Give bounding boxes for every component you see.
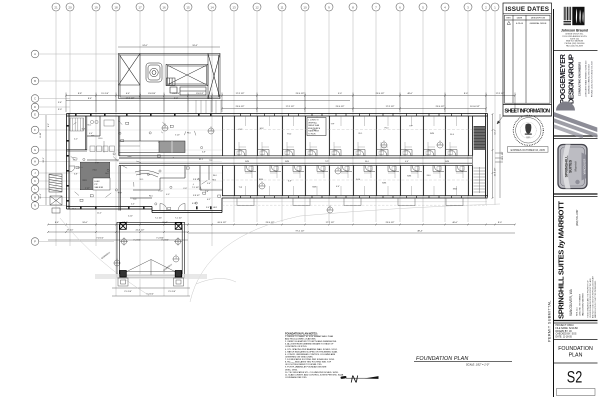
svg-text:A: A xyxy=(34,52,36,56)
svg-text:B: B xyxy=(34,79,36,83)
svg-text:15: 15 xyxy=(186,5,190,9)
svg-text:PHONE: (419) 352-7537 (800) 5: PHONE: (419) 352-7537 (800) 555-3057 xyxy=(592,60,594,97)
svg-text:ELEV: ELEV xyxy=(95,181,101,183)
svg-text:3 1/2": 3 1/2" xyxy=(175,135,180,137)
svg-text:1889: 1889 xyxy=(526,137,530,139)
svg-text:VANCOUVER: VANCOUVER xyxy=(584,158,587,174)
svg-text:SCALE: 1/32" = 1'-0": SCALE: 1/32" = 1'-0" xyxy=(466,363,489,366)
svg-text:HD2: HD2 xyxy=(313,130,317,132)
svg-text:C: C xyxy=(34,97,36,101)
svg-text:SW4: SW4 xyxy=(453,189,457,191)
svg-text:J: J xyxy=(34,171,36,175)
svg-text:11. SLAB CONSTR. AND CONTROL J: 11. SLAB CONSTR. AND CONTROL JOINTS PER … xyxy=(285,373,344,376)
svg-text:6: 6 xyxy=(399,5,401,9)
svg-text:TYP: TYP xyxy=(133,199,137,201)
svg-text:SEE 8/S5: SEE 8/S5 xyxy=(95,187,105,189)
svg-text:16: 16 xyxy=(162,5,166,9)
svg-text:DESCRIPTION: DESCRIPTION xyxy=(531,17,546,19)
svg-text:6'-8": 6'-8" xyxy=(288,181,292,183)
svg-text:10. TSC INDICATES STL. COLUMN: 10. TSC INDICATES STL. COLUMN PER SCHED.… xyxy=(285,371,339,374)
svg-text:PLAN: PLAN xyxy=(569,353,583,359)
svg-text:5'-0": 5'-0" xyxy=(207,183,211,185)
svg-text:SW4: SW4 xyxy=(430,133,434,135)
svg-text:3 1/2": 3 1/2" xyxy=(73,160,78,162)
svg-text:11: 11 xyxy=(280,5,283,9)
svg-text:6'-8": 6'-8" xyxy=(202,152,206,154)
svg-text:8'-4": 8'-4" xyxy=(88,98,92,100)
svg-text:8: 8 xyxy=(352,5,354,9)
svg-text:13: 13 xyxy=(232,5,236,9)
svg-text:5'-10": 5'-10" xyxy=(128,216,133,218)
svg-text:F8.0: F8.0 xyxy=(99,138,103,140)
svg-text:8. HD------ INDICATES TIED FO: 8. HD------ INDICATES TIED FOOTING W/B. … xyxy=(285,361,332,364)
svg-text:6'-2": 6'-2" xyxy=(48,123,50,127)
svg-text:COVERAGE REF 2/S5.: COVERAGE REF 2/S5. xyxy=(285,376,307,379)
svg-text:7'-4 3/4": 7'-4 3/4" xyxy=(133,239,141,241)
svg-text:MANNER WITHOUT WRITTEN PERMISS: MANNER WITHOUT WRITTEN PERMISSION. xyxy=(594,280,597,318)
svg-text:21: 21 xyxy=(54,5,58,9)
svg-text:31'-2": 31'-2" xyxy=(43,157,45,163)
svg-text:6'-4": 6'-4" xyxy=(126,93,130,95)
svg-text:FILE NAME: S210-B2: FILE NAME: S210-B2 xyxy=(556,327,579,330)
svg-text:3'-0": 3'-0" xyxy=(58,109,62,111)
svg-text:VANCOUVER, WA: VANCOUVER, WA xyxy=(569,288,573,316)
svg-text:18: 18 xyxy=(114,5,118,9)
svg-text:4'-0": 4'-0" xyxy=(405,161,409,163)
svg-text:10: 10 xyxy=(303,5,307,9)
svg-text:TYP: TYP xyxy=(239,187,243,189)
svg-text:FOUNDATION PLAN: FOUNDATION PLAN xyxy=(416,356,468,362)
svg-text:23'-0 1/2": 23'-0 1/2" xyxy=(436,106,445,108)
svg-text:TYP: TYP xyxy=(331,124,335,126)
svg-text:CHECKED BY: SGS: CHECKED BY: SGS xyxy=(556,334,577,336)
svg-text:7'-1 1/2": 7'-1 1/2" xyxy=(175,218,182,220)
svg-text:DATE: DATE xyxy=(517,16,523,19)
svg-text:TYP.: TYP. xyxy=(209,160,213,162)
svg-text:6. CONCR. UNFINISHED CONTROL: 6. CONCR. UNFINISHED CONTROL COLUMNS ARE xyxy=(285,353,336,356)
svg-text:12810 SE. 7TH STREET: 12810 SE. 7TH STREET xyxy=(580,293,582,316)
svg-text:SW6: SW6 xyxy=(285,161,289,163)
svg-text:4'-2": 4'-2" xyxy=(207,199,211,201)
svg-text:7'-4 1/2": 7'-4 1/2" xyxy=(146,294,154,296)
svg-text:7'-4 3/4": 7'-4 3/4" xyxy=(161,239,169,241)
svg-text:M: M xyxy=(34,196,37,200)
svg-text:S5.1: S5.1 xyxy=(140,179,144,181)
svg-text:14: 14 xyxy=(210,5,214,9)
svg-text:22'-6 1/2": 22'-6 1/2" xyxy=(136,230,145,232)
svg-text:4: 4 xyxy=(444,5,446,9)
svg-text:SW6: SW6 xyxy=(445,161,449,163)
svg-text:K: K xyxy=(34,179,36,183)
svg-text:SPRINGHILL SUITES by MARRIOTT: SPRINGHILL SUITES by MARRIOTT xyxy=(557,201,566,319)
svg-text:9'-1 1/4": 9'-1 1/4" xyxy=(101,93,109,95)
svg-text:REV: REV xyxy=(507,17,512,19)
svg-text:8'-8 3/4": 8'-8 3/4" xyxy=(148,93,156,95)
svg-text:E: E xyxy=(34,113,36,117)
svg-text:7: 7 xyxy=(375,5,377,9)
svg-text:DESIGN GROUP: DESIGN GROUP xyxy=(567,54,576,104)
svg-text:13'-8 1/2": 13'-8 1/2" xyxy=(494,167,496,176)
svg-text:5. HATCH INDICATES SLOPED OR: 5. HATCH INDICATES SLOPED OR THICKENED S… xyxy=(285,350,338,353)
svg-text:(360) 571-1997: (360) 571-1997 xyxy=(576,209,579,226)
svg-text:SHEET INFORMATION: SHEET INFORMATION xyxy=(505,109,551,115)
svg-text:23'-0 1/2": 23'-0 1/2" xyxy=(296,93,305,95)
svg-text:6'-8": 6'-8" xyxy=(239,129,243,131)
svg-text:23'-0 1/2": 23'-0 1/2" xyxy=(386,222,395,224)
svg-text:4. STL. SPACING PER BEARING W: 4. STL. SPACING PER BEARING WALL SCHED. … xyxy=(285,348,338,351)
svg-text:PERMIT SUBMITTAL: PERMIT SUBMITTAL xyxy=(547,300,551,342)
svg-text:18'-0": 18'-0" xyxy=(82,222,88,224)
svg-text:4'-0": 4'-0" xyxy=(131,203,135,205)
svg-text:7'-1 1/4": 7'-1 1/4" xyxy=(155,218,162,220)
svg-text:D: D xyxy=(34,105,36,109)
svg-text:F4.0: F4.0 xyxy=(356,179,360,181)
svg-text:F4.0: F4.0 xyxy=(93,169,97,171)
svg-text:TYP.: TYP. xyxy=(95,163,99,165)
svg-text:S5.1: S5.1 xyxy=(72,208,76,210)
svg-text:46'-0": 46'-0" xyxy=(452,222,458,224)
svg-text:3. ALL EXTERIOR DIMENSIONS AR: 3. ALL EXTERIOR DIMENSIONS ARE TO FACE O… xyxy=(285,343,334,346)
svg-text:SW6: SW6 xyxy=(127,156,131,158)
svg-text:10'-10 1/2": 10'-10 1/2" xyxy=(470,106,480,108)
svg-text:48'-4": 48'-4" xyxy=(417,231,423,233)
svg-text:TYP: TYP xyxy=(325,161,329,163)
svg-text:1. CONTR. TO: 1. CONTR. TO xyxy=(308,120,319,122)
svg-text:F: F xyxy=(34,128,36,132)
svg-text:1: 1 xyxy=(494,5,496,9)
svg-text:8'-10": 8'-10" xyxy=(40,132,42,138)
svg-text:TO POUR: TO POUR xyxy=(308,134,316,136)
svg-text:F8.0: F8.0 xyxy=(187,132,191,134)
svg-text:3 1/2": 3 1/2" xyxy=(85,188,90,190)
svg-text:8'-8": 8'-8" xyxy=(78,93,82,95)
svg-text:4'-0": 4'-0" xyxy=(166,194,170,196)
svg-text:F4.0: F4.0 xyxy=(149,196,153,198)
svg-text:SHS, LLC: SHS, LLC xyxy=(577,307,579,316)
svg-text:BOWLING GREEN, OHIO 43402: BOWLING GREEN, OHIO 43402 xyxy=(589,63,591,93)
svg-text:G: G xyxy=(34,148,36,152)
svg-text:5'-4": 5'-4" xyxy=(58,102,62,104)
svg-text:19: 19 xyxy=(94,5,98,9)
svg-text:12: 12 xyxy=(255,5,259,9)
svg-text:PROJECT: #3010: PROJECT: #3010 xyxy=(556,325,575,327)
svg-text:6'-10": 6'-10" xyxy=(192,203,197,205)
svg-text:5: 5 xyxy=(422,5,424,9)
svg-text:14'-2": 14'-2" xyxy=(494,129,496,135)
svg-text:2'-1 1/4": 2'-1 1/4" xyxy=(124,291,132,293)
svg-text:9'-8 1/2": 9'-8 1/2" xyxy=(193,195,200,197)
svg-text:3'-4": 3'-4" xyxy=(206,207,210,209)
svg-text:11'-2": 11'-2" xyxy=(97,213,102,215)
svg-text:17'-2 1/2": 17'-2 1/2" xyxy=(326,222,335,224)
svg-text:AND HOLD-DOWN LOCATIONS.: AND HOLD-DOWN LOCATIONS. xyxy=(285,338,316,341)
svg-text:FAX: (206) 766-8399: FAX: (206) 766-8399 xyxy=(566,44,583,47)
svg-text:17'-2 1/2": 17'-2 1/2" xyxy=(236,93,245,95)
svg-text:SW6: SW6 xyxy=(382,183,386,185)
svg-text:23'-0 1/2": 23'-0 1/2" xyxy=(336,106,345,108)
svg-text:OF FOOTING REFER TO DETAIL 7/S: OF FOOTING REFER TO DETAIL 7/S5. xyxy=(285,363,322,366)
svg-text:F4.0: F4.0 xyxy=(450,134,454,136)
svg-text:DRAWN BY: JD: DRAWN BY: JD xyxy=(556,330,573,333)
svg-text:N: N xyxy=(351,374,359,386)
svg-text:17'-2 1/2": 17'-2 1/2" xyxy=(386,106,395,108)
svg-text:F6.0: F6.0 xyxy=(385,127,389,129)
svg-text:GENERAL ISSUE: GENERAL ISSUE xyxy=(530,22,547,25)
svg-text:7. F4 INDICATES FOOTING PER S: 7. F4 INDICATES FOOTING PER SCHEDULE 15/… xyxy=(285,358,335,361)
svg-text:1. REFER TO SHEET S1 FOR SHEA: 1. REFER TO SHEET S1 FOR SHEAR WALL PLAN xyxy=(285,335,334,338)
svg-text:F6.0: F6.0 xyxy=(105,173,109,175)
svg-text:F4.0: F4.0 xyxy=(213,175,217,177)
svg-text:60'-4 1/2": 60'-4 1/2" xyxy=(218,222,227,224)
svg-text:48'-0": 48'-0" xyxy=(407,93,413,95)
svg-text:SUITES: SUITES xyxy=(569,159,573,173)
svg-text:CONSULTING ENGINEERS: CONSULTING ENGINEERS xyxy=(578,62,582,96)
svg-text:23'-0 1/2": 23'-0 1/2" xyxy=(376,93,385,95)
svg-text:Johnson Braund: Johnson Braund xyxy=(561,29,588,33)
svg-text:2'-1 1/4": 2'-1 1/4" xyxy=(168,291,176,293)
svg-text:4'-0": 4'-0" xyxy=(74,139,78,141)
svg-text:SW4: SW4 xyxy=(245,161,249,163)
svg-text:97'-1 1/2": 97'-1 1/2" xyxy=(296,231,305,233)
svg-text:29'-5 1/2": 29'-5 1/2" xyxy=(502,151,504,160)
svg-text:6'-8": 6'-8" xyxy=(82,128,86,130)
svg-text:EXPIRES OCTOBER 16, 2005: EXPIRES OCTOBER 16, 2005 xyxy=(511,149,546,152)
svg-text:12'-4": 12'-4" xyxy=(40,193,42,199)
svg-text:18'-6": 18'-6" xyxy=(192,45,198,47)
svg-text:2: 2 xyxy=(485,5,487,9)
svg-text:S5.1: S5.1 xyxy=(199,159,203,161)
svg-text:7'-1 1/4": 7'-1 1/4" xyxy=(192,187,199,189)
svg-text:3: 3 xyxy=(467,5,469,9)
svg-text:TYP: TYP xyxy=(409,125,413,127)
svg-text:9'-0": 9'-0" xyxy=(338,93,342,95)
svg-text:SW4: SW4 xyxy=(82,180,86,182)
svg-text:N: N xyxy=(34,204,36,208)
svg-text:FOUNDATION: FOUNDATION xyxy=(558,346,593,352)
svg-text:HD2: HD2 xyxy=(213,207,217,209)
svg-text:F4.0: F4.0 xyxy=(427,175,431,177)
svg-text:20: 20 xyxy=(68,5,72,9)
svg-text:F4.0: F4.0 xyxy=(287,134,291,136)
svg-text:TYP.: TYP. xyxy=(118,193,122,195)
svg-text:17'-2 1/2": 17'-2 1/2" xyxy=(286,106,295,108)
svg-text:VANCOUVER, WA 98683: VANCOUVER, WA 98683 xyxy=(582,292,585,316)
svg-text:17: 17 xyxy=(138,5,142,9)
svg-text:S2: S2 xyxy=(567,369,583,387)
svg-text:8'-0": 8'-0" xyxy=(464,93,468,95)
svg-text:4'-0": 4'-0" xyxy=(89,133,93,135)
svg-text:SW6: SW6 xyxy=(312,187,316,189)
svg-text:9: 9 xyxy=(328,5,330,9)
svg-text:S5.1: S5.1 xyxy=(358,133,362,135)
svg-text:ISSUE DATES: ISSUE DATES xyxy=(505,6,549,13)
svg-text:3 1/2": 3 1/2" xyxy=(158,190,163,192)
svg-text:F6.0: F6.0 xyxy=(365,161,369,163)
svg-text:L: L xyxy=(34,187,36,191)
svg-text:6-23-04: 6-23-04 xyxy=(516,23,524,25)
svg-text:SW6: SW6 xyxy=(259,179,263,181)
svg-text:9. FOR PLUMBING AT FOUNDATION: 9. FOR PLUMBING AT FOUNDATIONS SEE xyxy=(285,366,327,369)
svg-text:HD2: HD2 xyxy=(260,128,264,130)
svg-text:8'-0": 8'-0" xyxy=(498,222,502,224)
svg-text:DATE: 11-18-05: DATE: 11-18-05 xyxy=(556,336,573,339)
svg-text:Marriott: Marriott xyxy=(573,161,577,171)
svg-text:4'-0": 4'-0" xyxy=(336,186,340,188)
svg-text:24'-0": 24'-0" xyxy=(142,45,148,47)
svg-text:8'-4": 8'-4" xyxy=(55,222,59,224)
svg-text:1168 NORTH MAIN STREET, SUITE: 1168 NORTH MAIN STREET, SUITE 200 xyxy=(585,60,588,97)
svg-text:S5.1: S5.1 xyxy=(87,125,91,127)
svg-text:HD2: HD2 xyxy=(212,180,216,182)
svg-text:H: H xyxy=(34,160,36,164)
svg-text:4'-8 1/4": 4'-8 1/4" xyxy=(172,93,180,95)
svg-text:6'-8": 6'-8" xyxy=(183,188,187,190)
svg-text:SW6: SW6 xyxy=(407,175,411,177)
svg-text:2. VERIFY ELEVATOR PIT DEPTH: 2. VERIFY ELEVATOR PIT DEPTH AND DIMENSI… xyxy=(285,340,337,343)
svg-text:6'-8": 6'-8" xyxy=(74,173,78,175)
svg-text:7'-8 1/2": 7'-8 1/2" xyxy=(96,238,104,240)
svg-text:23'-0 1/2": 23'-0 1/2" xyxy=(236,106,245,108)
svg-text:P: P xyxy=(34,240,36,244)
svg-text:SIDEWALK: SIDEWALK xyxy=(101,251,112,260)
